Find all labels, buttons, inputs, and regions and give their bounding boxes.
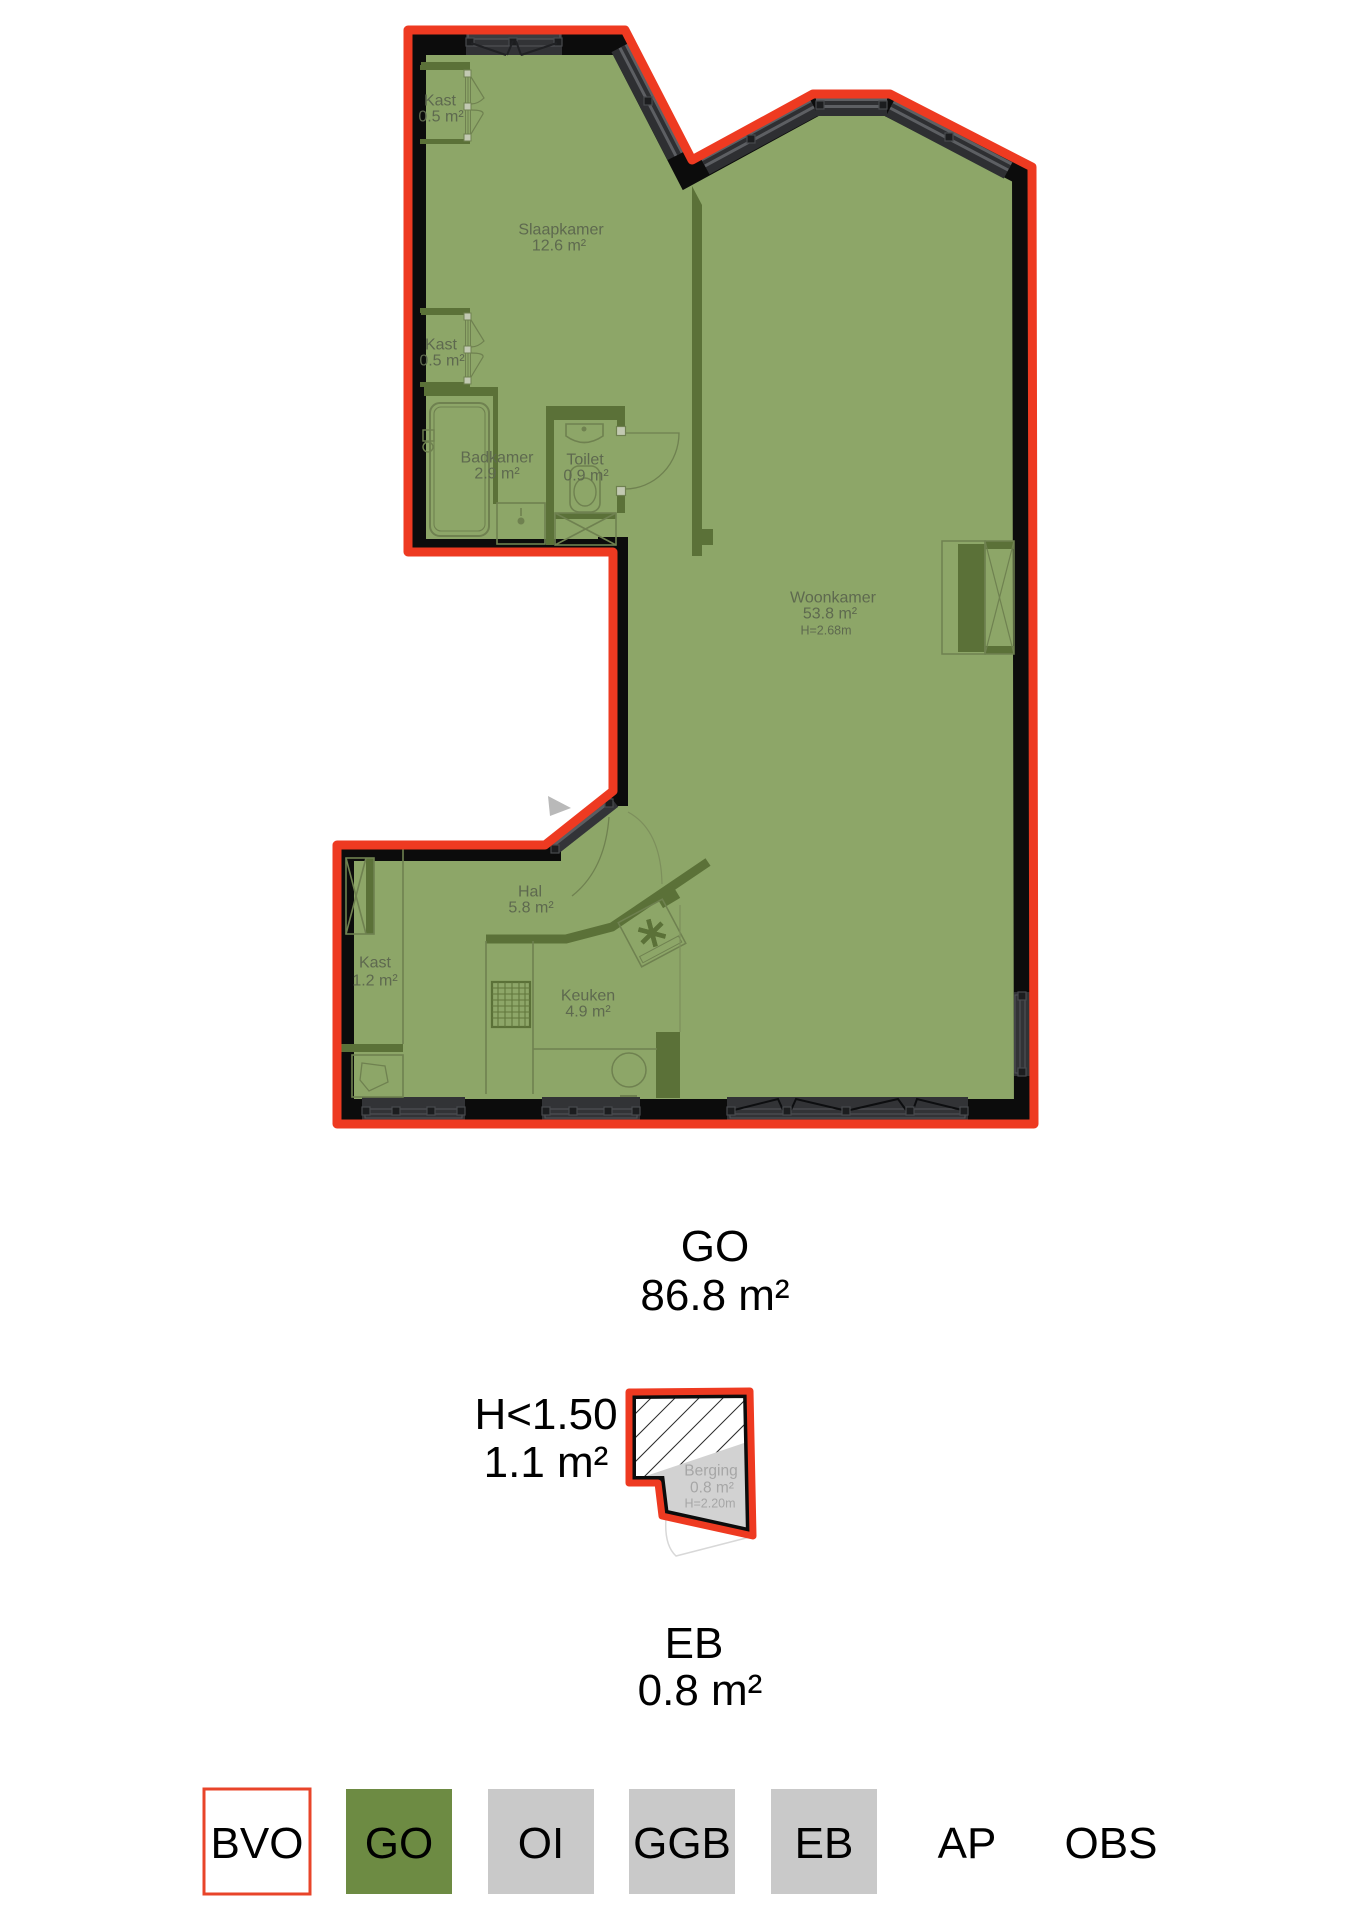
svg-text:OBS: OBS (1065, 1819, 1158, 1868)
svg-text:0.8 m²: 0.8 m² (638, 1666, 763, 1715)
svg-text:BVO: BVO (211, 1819, 304, 1868)
svg-text:1.2 m²: 1.2 m² (352, 973, 398, 990)
svg-text:GO: GO (365, 1819, 433, 1868)
svg-text:1.1 m²: 1.1 m² (484, 1438, 609, 1487)
svg-text:0.5 m²: 0.5 m² (419, 353, 465, 370)
svg-text:Kast: Kast (359, 955, 392, 972)
svg-text:2.9 m²: 2.9 m² (474, 466, 520, 483)
svg-text:Woonkamer: Woonkamer (790, 590, 877, 607)
svg-text:53.8 m²: 53.8 m² (803, 606, 858, 623)
svg-text:4.9 m²: 4.9 m² (565, 1004, 611, 1021)
svg-text:0.5 m²: 0.5 m² (418, 109, 464, 126)
svg-text:Keuken: Keuken (561, 988, 615, 1005)
svg-text:OI: OI (518, 1819, 564, 1868)
svg-text:Hal: Hal (518, 884, 542, 901)
svg-text:5.8 m²: 5.8 m² (508, 900, 554, 917)
svg-text:AP: AP (938, 1819, 997, 1868)
svg-text:Berging: Berging (684, 1462, 737, 1479)
svg-text:Kast: Kast (425, 337, 458, 354)
svg-text:Slaapkamer: Slaapkamer (518, 222, 604, 239)
svg-text:H=2.68m: H=2.68m (800, 623, 851, 637)
svg-text:0.8 m²: 0.8 m² (690, 1479, 734, 1496)
svg-text:0.9 m²: 0.9 m² (563, 468, 609, 485)
svg-text:Badkamer: Badkamer (461, 450, 535, 467)
svg-text:H=2.20m: H=2.20m (684, 1496, 735, 1510)
svg-text:GO: GO (681, 1222, 749, 1271)
svg-text:H<1.50: H<1.50 (474, 1390, 617, 1439)
svg-text:12.6 m²: 12.6 m² (532, 238, 587, 255)
svg-text:EB: EB (795, 1819, 854, 1868)
svg-text:Kast: Kast (424, 93, 457, 110)
svg-text:GGB: GGB (633, 1819, 731, 1868)
svg-text:86.8 m²: 86.8 m² (640, 1271, 789, 1320)
svg-text:EB: EB (665, 1619, 724, 1668)
svg-text:Toilet: Toilet (566, 452, 604, 469)
